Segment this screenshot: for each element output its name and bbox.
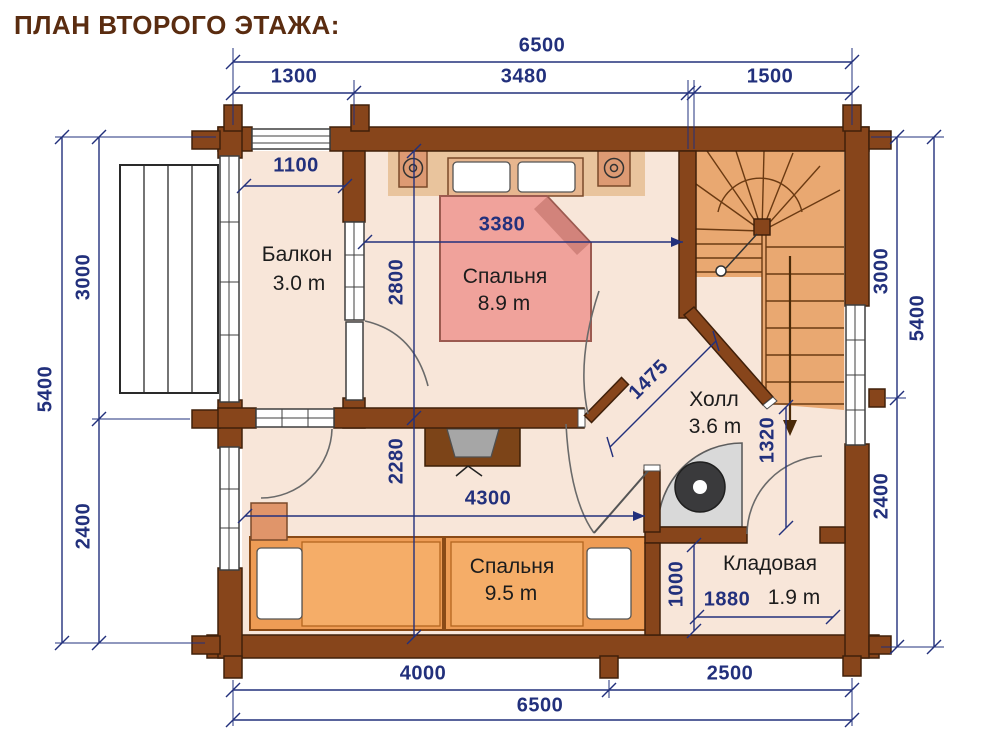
room-label-bedroom-bottom: Спальня — [470, 555, 554, 579]
dim-bottom-right: 2500 — [707, 663, 754, 686]
dim-right-lower: 2400 — [871, 473, 894, 520]
room-area-storage: 1.9 m — [768, 586, 821, 610]
dim-top-total: 6500 — [519, 35, 566, 58]
room-area-hall: 3.6 m — [689, 415, 742, 439]
dim-right-upper: 3000 — [871, 248, 894, 295]
floor-plan-page: ПЛАН ВТОРОГО ЭТАЖА: — [0, 0, 1000, 750]
dim-storage-depth: 1000 — [666, 561, 689, 608]
room-label-balcony: Балкон — [262, 243, 332, 267]
floor-plan-drawing — [0, 0, 1000, 750]
dim-bedroom-bottom-depth: 2280 — [386, 438, 409, 485]
dim-storage-width: 1880 — [704, 589, 751, 612]
dim-bedroom-top-depth: 2800 — [386, 259, 409, 306]
window-balcony-divider — [345, 222, 364, 320]
dim-bedroom-bottom-width: 4300 — [465, 488, 512, 511]
balcony-door-leaf — [346, 322, 363, 400]
room-label-storage: Кладовая — [723, 552, 817, 576]
window-left-bedroom — [220, 447, 239, 570]
dim-bed-width: 3380 — [479, 214, 526, 237]
window-top-balcony — [252, 129, 330, 149]
room-area-bedroom-top: 8.9 m — [478, 292, 531, 316]
dim-bottom-total: 6500 — [517, 695, 564, 718]
dim-bottom-left: 4000 — [400, 663, 447, 686]
dim-stair-exit: 1320 — [757, 417, 780, 464]
terrace-deck — [120, 165, 218, 393]
dim-left-total: 5400 — [35, 366, 58, 413]
single-bed-right — [445, 537, 655, 630]
nightstand-lamp-right — [598, 150, 630, 186]
dim-balcony-width: 1100 — [273, 155, 318, 178]
bedside-table — [251, 503, 287, 540]
window-balcony-bedroom — [256, 409, 334, 427]
dim-left-lower: 2400 — [73, 503, 96, 550]
dim-left-upper: 3000 — [73, 254, 96, 301]
window-balcony-glazing — [220, 156, 239, 402]
room-label-bedroom-top: Спальня — [463, 265, 547, 289]
nightstand-lamp-left — [399, 149, 427, 187]
dim-top-mid: 3480 — [501, 66, 548, 89]
dim-top-left: 1300 — [271, 66, 318, 89]
dim-right-total: 5400 — [907, 295, 930, 342]
room-label-hall: Холл — [689, 388, 739, 412]
dim-top-right: 1500 — [747, 66, 794, 89]
room-area-bedroom-bottom: 9.5 m — [485, 582, 538, 606]
window-right-hall — [846, 305, 865, 445]
room-area-balcony: 3.0 m — [273, 272, 326, 296]
